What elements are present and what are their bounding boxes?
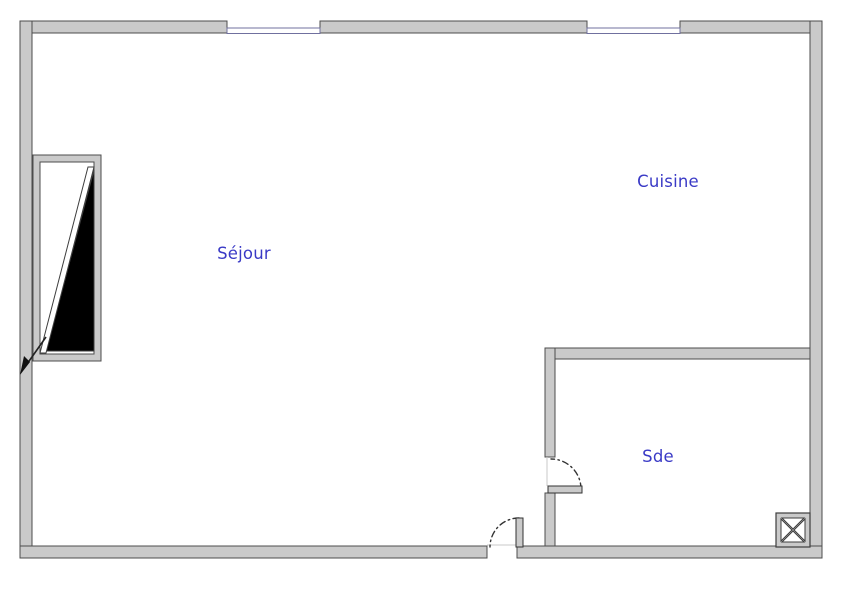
wall-top-segment-2 [320,21,587,33]
window-icon [227,28,320,34]
sde-wall-left-upper [545,348,555,457]
sde-wall-top [545,348,810,359]
wall-bottom-segment-1 [20,546,487,558]
entrance-door-leaf [516,518,523,547]
room-label-cuisine: Cuisine [637,172,699,191]
exterior-walls [20,21,822,558]
door-swing-arc-icon [490,518,519,547]
sde-door-leaf [548,486,582,493]
room-labels: Séjour Cuisine Sde [217,172,699,466]
wall-top-segment-3 [680,21,822,33]
sde-door [547,457,582,493]
wall-top-segment-1 [20,21,227,33]
floor-plan-drawing: Séjour Cuisine Sde [0,0,845,600]
door-swing-arc-icon [551,459,581,489]
room-label-sde: Sde [642,447,674,466]
entrance-door [487,518,523,547]
duct-shaft-symbol [776,513,810,547]
interior-walls-sde [545,348,810,546]
wall-bottom-segment-2 [517,546,822,558]
floor-plan: Séjour Cuisine Sde [0,0,845,600]
window-icon [587,28,680,34]
room-label-sejour: Séjour [217,244,271,263]
wall-left [20,21,32,558]
sde-wall-left-lower [545,493,555,546]
wall-right [810,21,822,558]
